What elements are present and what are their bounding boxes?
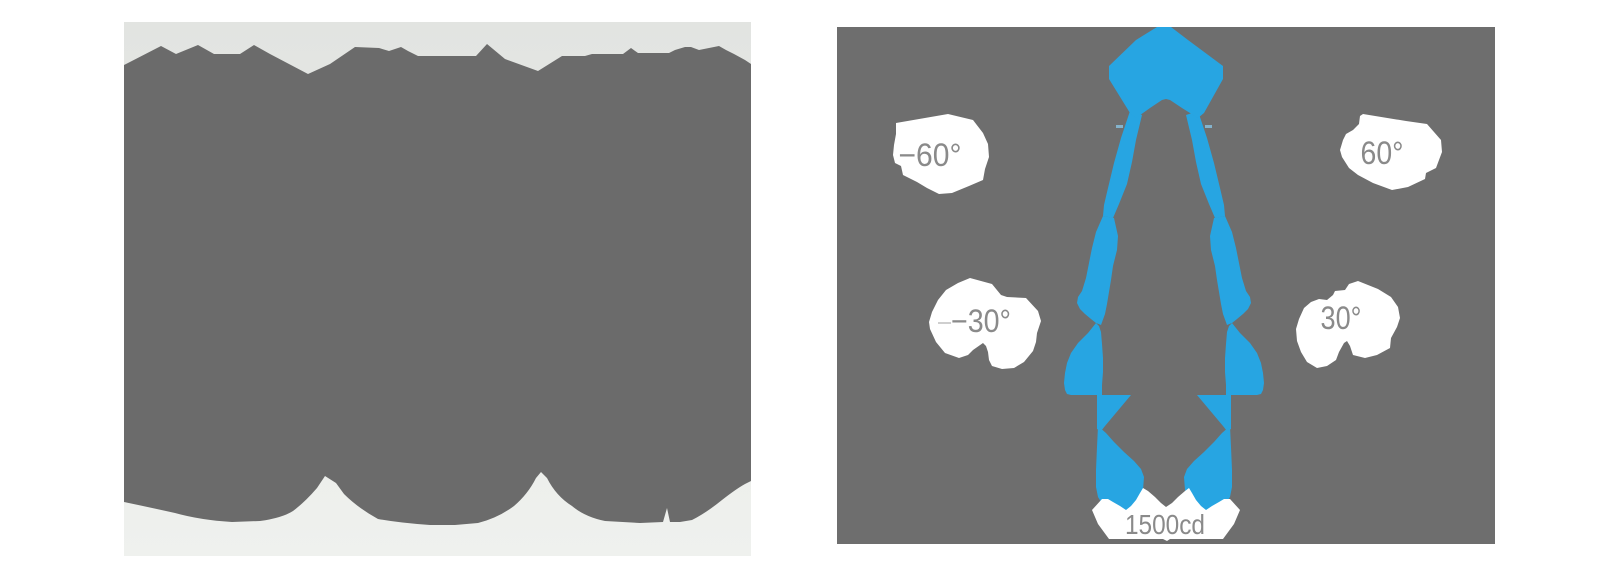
svg-text:60°: 60° xyxy=(1361,135,1404,171)
svg-text:1500cd: 1500cd xyxy=(1125,509,1205,540)
svg-text:−30°: −30° xyxy=(951,303,1011,339)
svg-text:30°: 30° xyxy=(1321,300,1362,336)
svg-text:−60°: −60° xyxy=(899,137,962,173)
